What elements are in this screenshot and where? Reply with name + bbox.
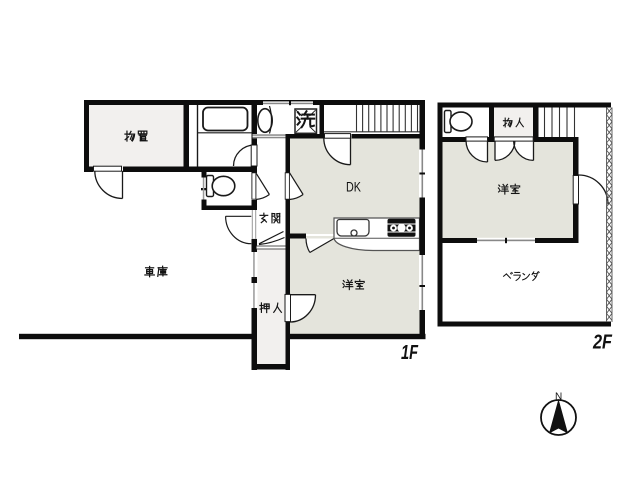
svg-text:N: N — [555, 392, 562, 403]
svg-text:2F: 2F — [592, 332, 612, 354]
svg-text:DK: DK — [346, 179, 362, 195]
svg-text:1F: 1F — [401, 342, 419, 364]
